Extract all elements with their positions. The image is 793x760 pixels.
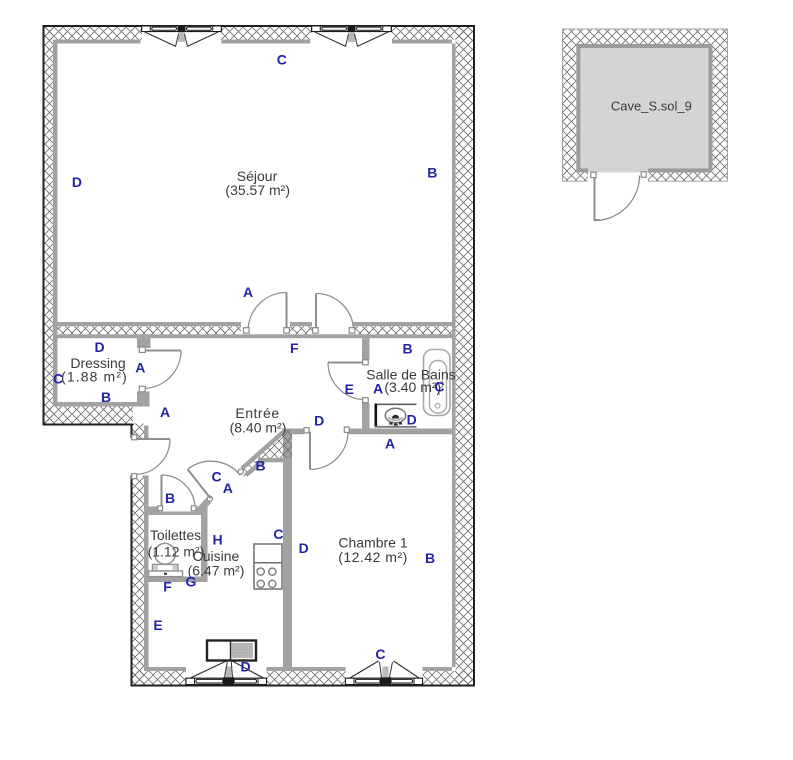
svg-text:B: B <box>101 389 111 405</box>
svg-text:D: D <box>299 540 309 556</box>
svg-text:(1.88 m²): (1.88 m²) <box>61 369 128 385</box>
svg-text:B: B <box>165 490 175 506</box>
svg-text:B: B <box>402 341 412 357</box>
svg-text:C: C <box>434 379 444 395</box>
svg-text:B: B <box>255 458 265 474</box>
svg-text:B: B <box>425 550 435 566</box>
svg-text:F: F <box>163 579 172 595</box>
svg-text:(12.42 m²): (12.42 m²) <box>338 549 408 565</box>
svg-text:H: H <box>212 532 222 548</box>
svg-text:E: E <box>153 617 162 633</box>
svg-text:C: C <box>375 646 385 662</box>
svg-text:A: A <box>385 436 395 452</box>
svg-text:C: C <box>273 526 283 542</box>
svg-text:G: G <box>186 574 197 590</box>
svg-text:D: D <box>241 659 251 675</box>
svg-text:(8.40 m²): (8.40 m²) <box>230 420 287 436</box>
svg-text:A: A <box>223 480 233 496</box>
svg-text:C: C <box>277 52 287 68</box>
svg-text:A: A <box>373 381 383 397</box>
svg-text:D: D <box>95 339 105 355</box>
svg-text:D: D <box>314 413 324 429</box>
svg-text:(35.57 m²): (35.57 m²) <box>225 182 290 198</box>
svg-text:E: E <box>345 381 354 397</box>
svg-text:F: F <box>290 340 299 356</box>
svg-text:Toilettes: Toilettes <box>150 527 201 543</box>
svg-text:D: D <box>407 412 417 428</box>
svg-text:D: D <box>72 174 82 190</box>
svg-text:A: A <box>135 360 145 376</box>
svg-text:Cave_S.sol_9: Cave_S.sol_9 <box>611 99 692 114</box>
svg-text:B: B <box>427 165 437 181</box>
svg-text:C: C <box>53 371 63 387</box>
svg-text:A: A <box>243 284 253 300</box>
svg-text:C: C <box>211 469 221 485</box>
svg-text:(3.40 m²): (3.40 m²) <box>384 379 441 395</box>
svg-text:Entrée: Entrée <box>235 405 279 421</box>
svg-text:A: A <box>160 404 170 420</box>
